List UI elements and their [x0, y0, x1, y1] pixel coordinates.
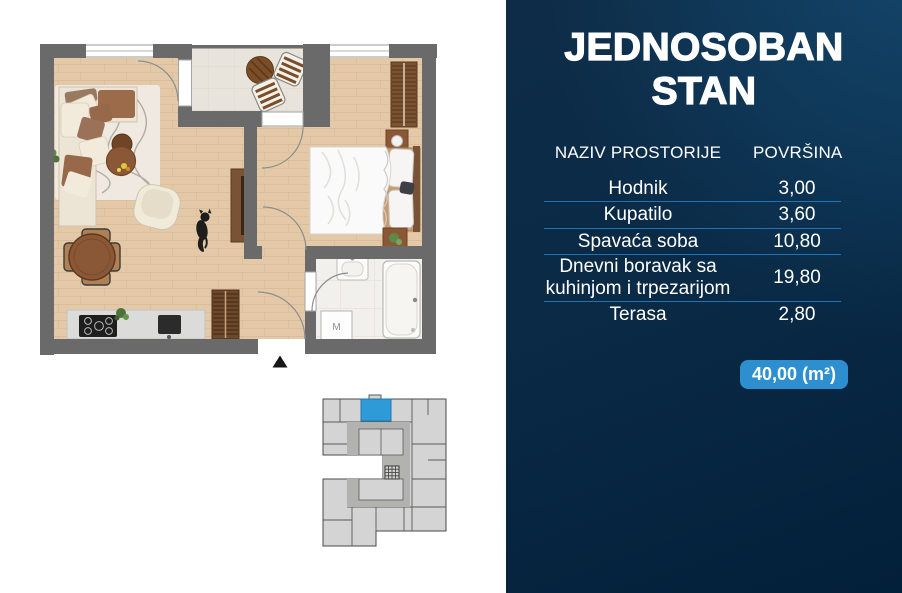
svg-text:M: M: [332, 322, 340, 333]
